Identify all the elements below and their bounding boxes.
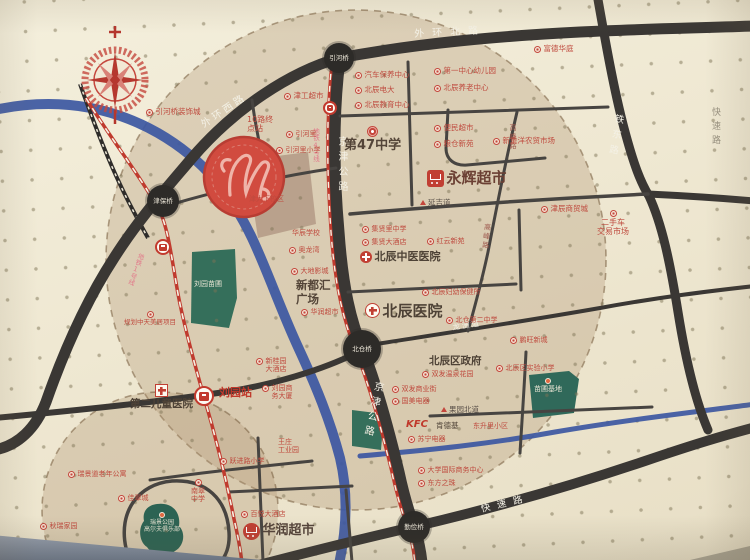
photo-corner-cut [0, 533, 262, 560]
map-poi: 富德华庭 [534, 45, 574, 54]
poi-marker-icon [289, 247, 296, 254]
poi-marker-icon [286, 131, 293, 138]
poi-label: 新重洋农贸市场 [503, 137, 556, 146]
poi-marker-icon [510, 337, 517, 344]
poi-label: 北辰电大 [365, 86, 395, 95]
poi-marker-icon [68, 471, 75, 478]
poi-marker-icon [541, 206, 548, 213]
poi-marker-icon [40, 523, 47, 530]
map-poi: 引河里小学 [276, 146, 321, 154]
map-poi: 瑞景道老年公寓 [68, 470, 127, 478]
poi-marker-icon [392, 386, 399, 393]
poi-no47-middle-school: 第47中学 [344, 126, 401, 153]
map-poi: 红云新苑 [427, 237, 465, 245]
poi-label: 瑞景公园 高尔夫俱乐部 [144, 519, 180, 533]
poi-label: 津工超市 [294, 92, 324, 101]
compass-icon [85, 26, 145, 124]
poi-marker-icon [284, 93, 291, 100]
poi-marker-icon [446, 317, 453, 324]
poi-label: 北辰区实验小学 [506, 364, 555, 372]
map-poi: 佳翠城 [118, 494, 149, 502]
crosscbig-icon [365, 303, 380, 318]
map-poi: 苏宁电器 [408, 435, 446, 443]
poi-marker-icon [392, 398, 399, 405]
location-map: 引河桥装饰城10路终 点站引河里引河里小学津工超市汽车保养中心北辰电大北辰教育中… [0, 0, 750, 560]
map-poi: 集贤大酒店 [362, 238, 407, 246]
poi-kfc: KFC [406, 419, 428, 431]
poi-marker-icon [496, 365, 503, 372]
cart-icon [427, 170, 444, 187]
map-poi: 大学国际商务中心 [418, 466, 484, 474]
poi-label: 引河里小学 [286, 146, 321, 154]
poi-marker-icon [147, 311, 154, 318]
poi-label: 规划中天美居项目 [124, 319, 176, 327]
badge-icon [367, 126, 378, 137]
map-poi: 北辰养老中心 [434, 84, 489, 93]
map-poi: 二手车 交易市场 [597, 209, 629, 237]
poi-tcm-hospital: 北辰中医医院 [360, 251, 441, 264]
poi-label: 10路终 点站 [247, 115, 273, 134]
road-label: 铁东路 [606, 113, 623, 160]
poi-label: 集贤大酒店 [372, 238, 407, 246]
poi-label: 华润超市 [263, 523, 315, 538]
poi-label: 南翠 中学 [191, 487, 205, 504]
poi-marker-icon [434, 85, 441, 92]
poi-label: 鹏旺新城 [520, 336, 548, 344]
poi-label: 国美电器 [402, 397, 430, 405]
poi-marker-icon [422, 289, 429, 296]
road-label: 延吉道 [420, 199, 451, 207]
poi-marker-icon [355, 102, 362, 109]
bridge-label: 引河桥 [329, 55, 349, 62]
road-label: 地铁1号线 [126, 252, 144, 286]
poi-yonghui-supermarket: 永辉超市 [427, 170, 507, 188]
poi-marker-icon [418, 480, 425, 487]
poi-label: 大学国际商务中心 [428, 466, 484, 474]
photo-corner-shadow [690, 546, 750, 560]
railway [80, 84, 148, 238]
poi-label: 北辰区政府 [429, 355, 482, 367]
poi-label: 奥龙湾 [299, 246, 320, 254]
bridge-label: 勤俭桥 [404, 524, 424, 531]
road-label: 快速路 [480, 494, 530, 514]
dot-icon [545, 378, 551, 384]
map-poi: 规划中天美居项目 [124, 310, 176, 327]
road-label-text: 地铁1号线 [126, 252, 145, 287]
label-liuyuan-nursery: 刘园苗圃 [194, 280, 222, 288]
poi-marker-icon [118, 495, 125, 502]
poi-label: 东方之珠 [428, 479, 456, 487]
bridge-circle: 勤俭桥 [398, 511, 430, 543]
cartc-icon [243, 523, 260, 540]
poi-label: 汽车保养中心 [365, 71, 410, 80]
poi-label: 华辰学校 [292, 229, 320, 237]
road-label: 外环西路 [200, 93, 249, 130]
map-poi: 新桂园 大酒店 [256, 357, 287, 374]
bridge-circle: 引河桥 [324, 43, 354, 73]
road-label: 高峰路 [481, 223, 491, 251]
poi-marker-icon [241, 511, 248, 518]
poi-label: 北辰妇幼保健所 [432, 288, 481, 296]
poi-marker-icon [362, 226, 369, 233]
radius-circle-large [106, 10, 606, 510]
road-label: 快速路 [710, 107, 719, 149]
poi-district-government: 北辰区政府 [429, 355, 482, 367]
road-label: 外环北路 [414, 26, 486, 40]
poi-label: 大地影城 [301, 267, 329, 275]
map-poi: 王庄 工业园 [278, 438, 299, 455]
poi-china-resources-supermarket: 华润超市 [243, 523, 315, 540]
map-poi: 新重洋农贸市场 [493, 137, 555, 146]
poi-label: 北辰中医医院 [375, 251, 441, 264]
poi-label: 北辰医院 [383, 303, 443, 321]
poi-label: 第47中学 [344, 138, 401, 153]
poi-label: 集贤里中学 [372, 225, 407, 233]
dot-icon [159, 512, 165, 518]
map-poi: 刘园商 务大厦 [262, 384, 293, 401]
poi-marker-icon [355, 87, 362, 94]
crossc-icon [360, 251, 372, 263]
road-label-text: 延吉道 [428, 199, 451, 207]
map-poi: 便民超市 [434, 124, 474, 133]
poi-marker-icon [434, 141, 441, 148]
map-poi: 粮仓新苑 [434, 140, 474, 149]
poi-label: 百悦大酒店 [251, 510, 286, 518]
poi-marker-icon [427, 238, 434, 245]
poi-label: 北仓第二中学 [456, 316, 498, 324]
label-nursery-base: 苗圃基地 [534, 378, 562, 393]
poi-beichen-hospital: 北辰医院 [365, 303, 443, 321]
map-poi: 鹏旺新城 [510, 336, 548, 344]
poi-marker-icon [195, 479, 202, 486]
map-poi: 10路终 点站 [247, 115, 273, 134]
bridge-label: 北仓桥 [352, 346, 372, 353]
poi-label: 新桂园 大酒店 [266, 357, 287, 374]
map-poi: 秋瑞家园 [40, 522, 78, 530]
metro-station-icon [194, 386, 214, 406]
poi-label: 双发温泉花园 [432, 370, 474, 378]
map-poi: 南翠 中学 [191, 478, 205, 504]
poi-marker-icon [534, 46, 541, 53]
poi-label: 苗圃基地 [534, 385, 562, 393]
poi-label: 粮仓新苑 [444, 140, 474, 149]
map-poi: 集贤里中学 [362, 225, 407, 233]
poi-label: 富德华庭 [544, 45, 574, 54]
map-poi: 津工超市 [284, 92, 324, 101]
poi-label: 引河桥装饰城 [156, 108, 201, 117]
poi-marker-icon [301, 309, 308, 316]
map-poi: 北辰妇幼保健所 [422, 288, 481, 296]
poi-label: 永辉超市 [447, 170, 507, 188]
poi-marker-icon [434, 125, 441, 132]
poi-label: 跃进路小学 [230, 457, 265, 465]
map-poi: 双发商业街 [392, 385, 437, 393]
crossbig-icon [155, 384, 168, 397]
poi-label: 北辰教育中心 [365, 101, 410, 110]
map-poi: 大地影城 [291, 267, 329, 275]
poi-label: 双发商业街 [402, 385, 437, 393]
poi-children-hospital: 第二儿童医院 [130, 384, 193, 410]
poi-xinduhui-plaza: 新都汇 广场 [296, 279, 331, 306]
poi-label: 佳翠城 [128, 494, 149, 502]
label-campus-area: 津大下校区 [249, 195, 284, 203]
project-logo [204, 137, 284, 217]
poi-marker-icon [434, 68, 441, 75]
metro-station-icon [323, 101, 337, 115]
rivers [0, 104, 750, 560]
poi-label: 第二儿童医院 [130, 398, 193, 410]
map-poi: 引河桥装饰城 [146, 108, 201, 117]
poi-label: 刘园苗圃 [194, 280, 222, 288]
poi-label: 第一中心幼儿园 [444, 67, 497, 76]
map-poi: 北仓第二中学 [446, 316, 498, 324]
road-label: 果园北道 [441, 406, 479, 414]
poi-marker-icon [418, 467, 425, 474]
metro-line-1 [86, 98, 242, 560]
map-poi: 华润超市 [301, 308, 339, 316]
poi-label: 华润超市 [311, 308, 339, 316]
road-label-text: 外环西路 [199, 92, 248, 130]
triangle-icon [420, 200, 426, 205]
poi-marker-icon [408, 436, 415, 443]
bridge-circle: 津保桥 [147, 185, 179, 217]
poi-label: 红云新苑 [437, 237, 465, 245]
road-label-text: 果园北道 [449, 406, 479, 414]
label-golf-club: 瑞景公园 高尔夫俱乐部 [144, 512, 180, 533]
bridge-circle: 北仓桥 [343, 330, 381, 368]
road-label: 京津公路 [361, 380, 383, 441]
poi-label: 秋瑞家园 [50, 522, 78, 530]
road-label-text: 铁东路 [605, 113, 624, 161]
map-poi: 引河里 [286, 130, 317, 138]
poi-label: 刘园商 务大厦 [272, 384, 293, 401]
map-poi: 华辰学校 [292, 229, 320, 237]
poi-label: 便民超市 [444, 124, 474, 133]
road-label-text: 京津公路 [361, 380, 384, 441]
poi-label: 津大下校区 [249, 195, 284, 203]
road-label-text: 外环北路 [414, 25, 486, 40]
map-poi: 奥龙湾 [289, 246, 320, 254]
road-label-text: 快速路 [480, 493, 531, 515]
map-poi: 第一中心幼儿园 [434, 67, 496, 76]
nursery-green-block [191, 249, 237, 328]
map-poi: 东升里小区 [473, 422, 508, 430]
poi-label: 肯德基 [436, 422, 459, 431]
poi-marker-icon [276, 147, 283, 154]
poi-label: 东升里小区 [473, 422, 508, 430]
map-poi: 国美电器 [392, 397, 430, 405]
triangle-icon [441, 407, 447, 412]
poi-marker-icon [610, 210, 617, 217]
bridge-label: 津保桥 [153, 198, 173, 205]
map-poi: 双发温泉花园 [422, 370, 474, 378]
poi-label: KFC [406, 419, 428, 431]
poi-marker-icon [220, 458, 227, 465]
poi-liuyuan-metro-station: 刘园站 [219, 387, 252, 400]
map-poi: 汽车保养中心 [355, 71, 410, 80]
poi-marker-icon [422, 371, 429, 378]
map-poi: 跃进路小学 [220, 457, 265, 465]
poi-marker-icon [146, 109, 153, 116]
poi-marker-icon [493, 138, 500, 145]
poi-label: 北辰养老中心 [444, 84, 489, 93]
poi-label: 新都汇 广场 [296, 279, 331, 306]
map-poi: 东方之珠 [418, 479, 456, 487]
map-poi: 北辰电大 [355, 86, 395, 95]
poi-label: 二手车 交易市场 [597, 218, 629, 237]
poi-label: 王庄 工业园 [278, 438, 299, 455]
poi-marker-icon [256, 358, 263, 365]
poi-marker-icon [291, 268, 298, 275]
poi-label: 津辰商贸城 [551, 205, 589, 214]
poi-label: 刘园站 [219, 387, 252, 400]
road-label-text: 高峰路 [481, 223, 492, 251]
map-poi: 北辰区实验小学 [496, 364, 555, 372]
metro-station-icon [155, 239, 171, 255]
map-poi: 北辰教育中心 [355, 101, 410, 110]
map-poi: 百悦大酒店 [241, 510, 286, 518]
map-poi: 津辰商贸城 [541, 205, 588, 214]
poi-marker-icon [262, 385, 269, 392]
poi-label: 苏宁电器 [418, 435, 446, 443]
poi-marker-icon [355, 72, 362, 79]
road-label-text: 快速路 [710, 107, 720, 149]
map-poi: 肯德基 [436, 422, 459, 431]
poi-marker-icon [362, 239, 369, 246]
poi-label: 瑞景道老年公寓 [78, 470, 127, 478]
poi-label: 引河里 [296, 130, 317, 138]
